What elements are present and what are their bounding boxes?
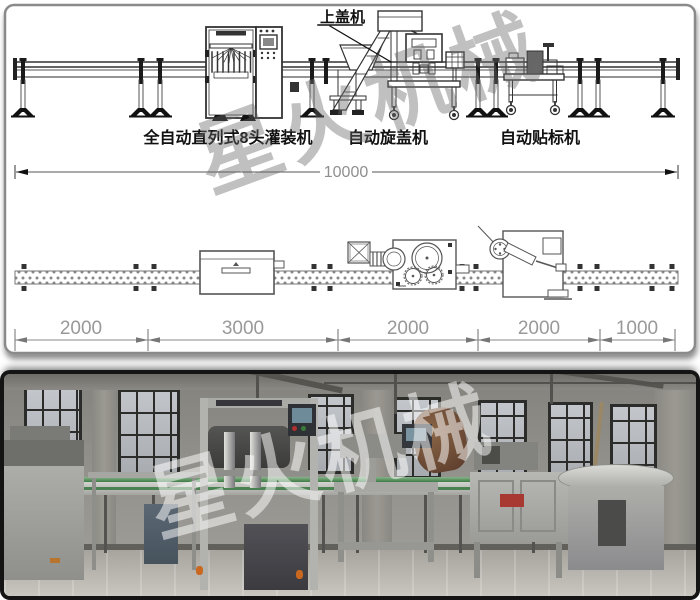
dosing-piston bbox=[224, 432, 235, 488]
filling-machine-label: 全自动直列式8头灌装机 bbox=[143, 128, 313, 147]
rotary-door bbox=[598, 500, 626, 546]
labeler-door bbox=[520, 480, 556, 532]
frame-column bbox=[200, 398, 208, 590]
technical-drawing: 上盖机 全自动直列式8头灌装机 自动旋盖机 自动贴标机 10000 bbox=[0, 0, 700, 368]
window bbox=[118, 385, 180, 481]
dim-segment-3: 2000 bbox=[387, 318, 429, 339]
control-screen bbox=[292, 408, 312, 423]
conveyor-leg bbox=[459, 495, 462, 553]
filling-machine-side bbox=[205, 27, 282, 121]
capper-head bbox=[340, 434, 406, 458]
start-button bbox=[301, 426, 306, 431]
dim-segment-2: 3000 bbox=[222, 318, 264, 339]
table-leg bbox=[192, 478, 196, 570]
factory-photo: 星火机械 bbox=[0, 370, 700, 600]
capper-deck bbox=[334, 482, 438, 492]
control-box bbox=[144, 504, 178, 564]
ceiling-pipe bbox=[324, 382, 696, 384]
floor-mark bbox=[50, 558, 60, 563]
labeler-leg bbox=[474, 542, 480, 578]
table-top bbox=[88, 472, 200, 478]
dosing-piston bbox=[250, 432, 261, 488]
factory-photo-view: 星火机械 bbox=[4, 374, 696, 596]
manifold-bar bbox=[214, 470, 310, 476]
tank bbox=[208, 426, 290, 468]
conveyor-leg bbox=[104, 495, 107, 553]
labeler-red-sign bbox=[500, 494, 524, 507]
floor-cone bbox=[196, 566, 203, 575]
lower-cabinet bbox=[244, 524, 308, 590]
stop-button bbox=[292, 426, 297, 431]
drop-pipe bbox=[550, 374, 553, 404]
conveyor-plan bbox=[15, 271, 678, 284]
drop-pipe bbox=[394, 374, 397, 414]
table-leg bbox=[92, 478, 96, 570]
dim-segment-1: 2000 bbox=[60, 318, 102, 339]
labeling-machine-label: 自动贴标机 bbox=[500, 128, 580, 147]
filling-machine-plan bbox=[200, 251, 284, 294]
capper-leg bbox=[338, 492, 344, 562]
floor-cone bbox=[296, 570, 303, 579]
conveyor-leg bbox=[322, 495, 325, 553]
capper-leg bbox=[428, 492, 434, 562]
cap-feeder-callout-label: 上盖机 bbox=[320, 8, 365, 26]
total-dimension-value: 10000 bbox=[324, 164, 369, 181]
capping-machine-label: 自动旋盖机 bbox=[348, 128, 428, 147]
dim-segment-5: 1000 bbox=[616, 318, 658, 339]
product-line-page: 上盖机 全自动直列式8头灌装机 自动旋盖机 自动贴标机 10000 bbox=[0, 0, 700, 600]
capper-shelf bbox=[338, 542, 434, 550]
machine-band bbox=[4, 440, 84, 466]
capper-screen bbox=[406, 428, 426, 441]
labeler-leg bbox=[556, 542, 562, 578]
labeler-roll bbox=[482, 446, 500, 464]
dim-segment-4: 2000 bbox=[518, 318, 560, 339]
line-drawing-sheet: 上盖机 全自动直列式8头灌装机 自动旋盖机 自动贴标机 10000 bbox=[0, 0, 700, 368]
name-strip bbox=[216, 400, 282, 406]
